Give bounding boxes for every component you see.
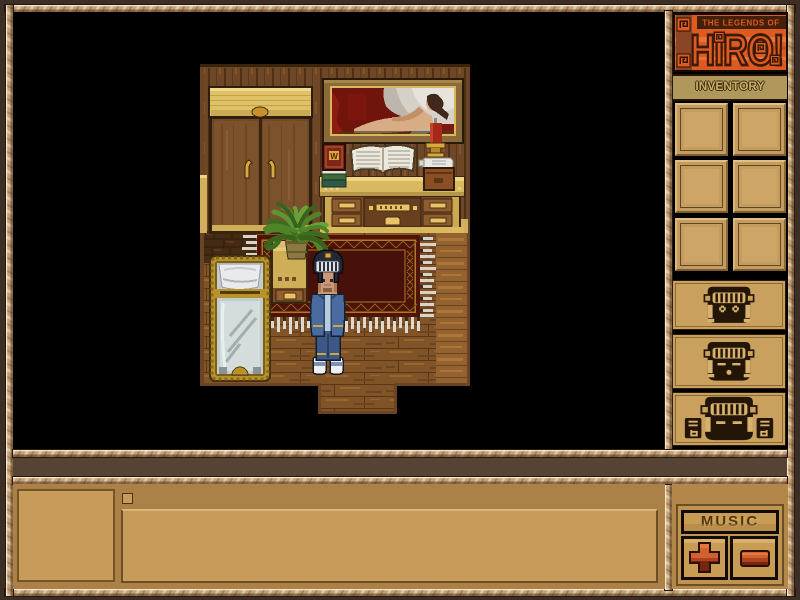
svg-text:W: W (330, 152, 338, 161)
